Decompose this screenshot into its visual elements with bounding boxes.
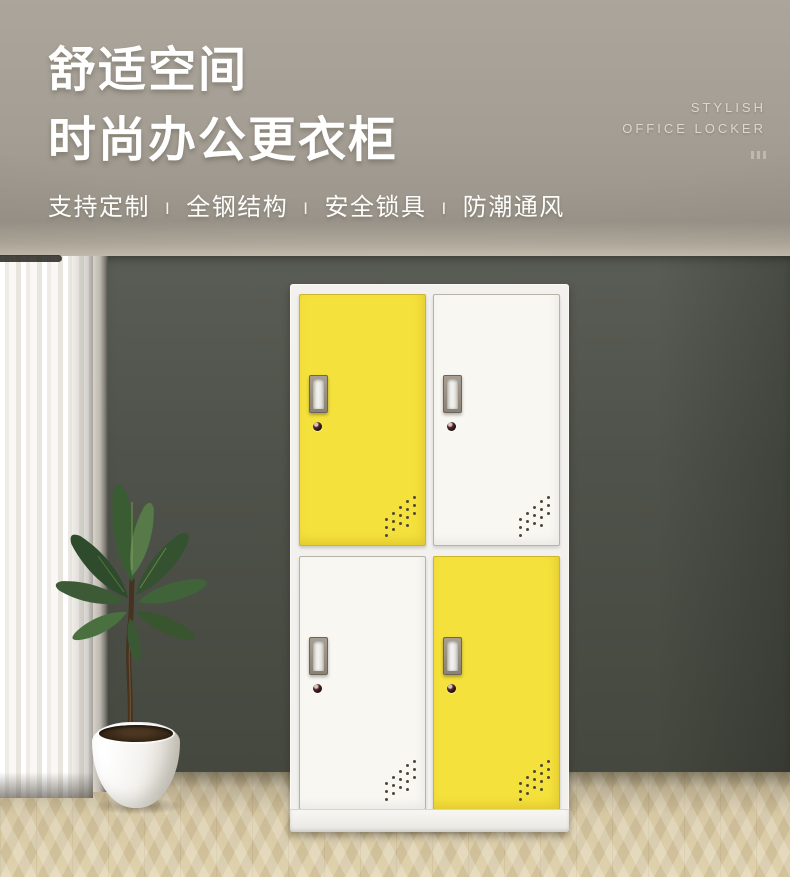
fiddle-leaf-plant xyxy=(40,430,280,760)
vent-holes xyxy=(384,758,418,804)
door-keyhole xyxy=(447,684,456,693)
door-keyhole xyxy=(313,684,322,693)
locker-door-bottom-left xyxy=(299,556,426,810)
feature-1: 支持定制 xyxy=(48,194,150,221)
feature-3: 安全锁具 xyxy=(324,194,426,221)
locker-cabinet xyxy=(290,284,569,832)
triple-bar-icon xyxy=(622,151,766,159)
separator-bar: I xyxy=(441,193,447,225)
feature-tagline: 支持定制I全钢结构I安全锁具I防潮通风 xyxy=(48,192,565,226)
door-keyhole xyxy=(313,422,322,431)
separator-bar: I xyxy=(303,193,309,225)
vent-holes xyxy=(518,758,552,804)
locker-plinth xyxy=(290,809,569,832)
door-handle xyxy=(443,375,462,413)
door-handle xyxy=(309,637,328,675)
brand-line-1: STYLISH xyxy=(622,97,766,118)
promo-banner: 舒适空间 时尚办公更衣柜 支持定制I全钢结构I安全锁具I防潮通风 STYLISH… xyxy=(0,0,790,877)
feature-2: 全钢结构 xyxy=(186,194,288,221)
plant-leaves xyxy=(54,483,209,664)
feature-4: 防潮通风 xyxy=(463,194,565,221)
door-handle xyxy=(443,637,462,675)
separator-bar: I xyxy=(165,193,171,225)
locker-door-top-right xyxy=(433,294,560,546)
brand-mark: STYLISH OFFICE LOCKER xyxy=(622,97,766,159)
curtain-rod xyxy=(0,255,62,262)
title-line-1: 舒适空间 xyxy=(48,36,398,106)
pot-soil xyxy=(99,725,173,742)
door-keyhole xyxy=(447,422,456,431)
locker-doors xyxy=(299,294,560,810)
vent-holes xyxy=(518,494,552,540)
door-handle xyxy=(309,375,328,413)
vent-holes xyxy=(384,494,418,540)
locker-door-top-left xyxy=(299,294,426,546)
title-line-2: 时尚办公更衣柜 xyxy=(48,106,398,176)
brand-line-2: OFFICE LOCKER xyxy=(622,118,766,139)
hero-headline: 舒适空间 时尚办公更衣柜 xyxy=(48,36,398,176)
locker-door-bottom-right xyxy=(433,556,560,810)
